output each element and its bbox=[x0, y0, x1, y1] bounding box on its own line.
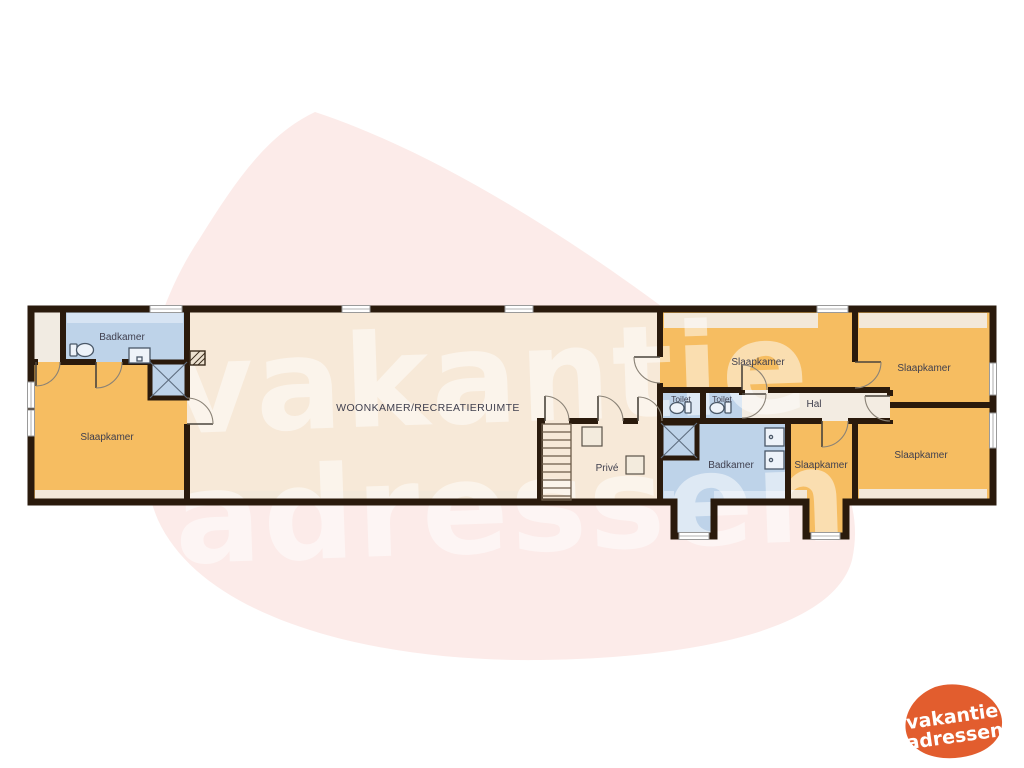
floorplan-drawing: vakantie adressen bbox=[0, 0, 1024, 768]
label-slaapkamer-mid-top: Slaapkamer bbox=[731, 357, 785, 368]
label-prive: Privé bbox=[596, 463, 619, 474]
sink-icon-right-2 bbox=[765, 451, 784, 469]
room-closet bbox=[31, 309, 63, 362]
floorplan-page: vakantie adressen bbox=[0, 0, 1024, 768]
band bbox=[859, 313, 987, 328]
toilet-icon-left bbox=[70, 344, 94, 357]
watermark: vakantie adressen bbox=[167, 292, 851, 594]
band bbox=[67, 313, 183, 323]
label-hal: Hal bbox=[806, 399, 821, 410]
sink-icon-left bbox=[129, 348, 150, 363]
chimney-hatch bbox=[190, 351, 205, 365]
label-slaapkamer-mid-bottom: Slaapkamer bbox=[794, 460, 848, 471]
label-toilet-1: Toilet bbox=[671, 394, 691, 404]
label-woonkamer: WOONKAMER/RECREATIERUIMTE bbox=[336, 402, 520, 414]
label-slaapkamer-left: Slaapkamer bbox=[80, 432, 134, 443]
sink-icon-right-1 bbox=[765, 428, 784, 446]
label-toilet-2: Toilet bbox=[712, 394, 732, 404]
label-slaapkamer-right-bottom: Slaapkamer bbox=[894, 450, 948, 461]
label-badkamer-right: Badkamer bbox=[708, 460, 754, 471]
band bbox=[859, 489, 987, 500]
label-badkamer-left: Badkamer bbox=[99, 332, 145, 343]
vakantieadressen-logo: vakantie adressen bbox=[888, 678, 1022, 766]
label-slaapkamer-right-top: Slaapkamer bbox=[897, 363, 951, 374]
watermark-line2: adressen bbox=[172, 422, 851, 594]
